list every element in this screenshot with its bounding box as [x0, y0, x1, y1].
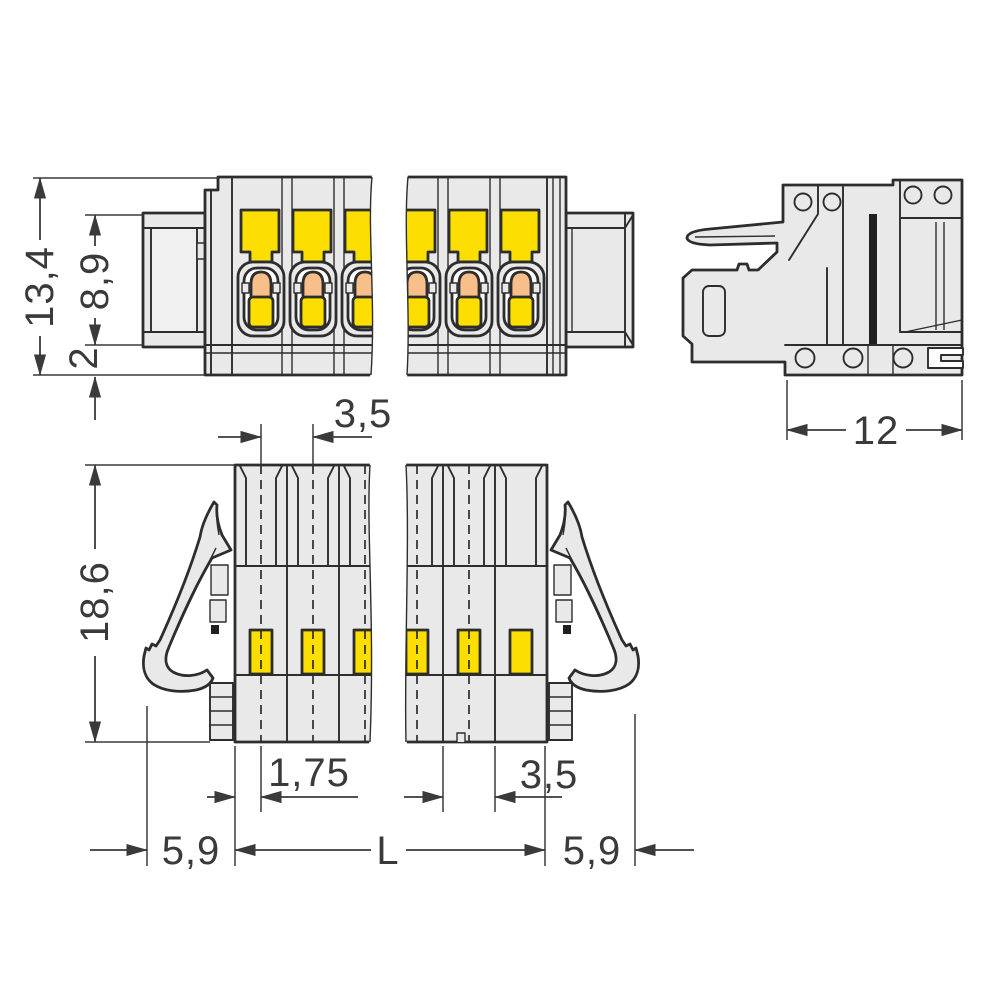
front-view: 13,4 8,9 2 — [18, 173, 633, 420]
dim-label-total-height: 13,4 — [18, 246, 62, 328]
dim-label-half-pitch: 1,75 — [268, 751, 350, 795]
bottom-view: 18,6 3,5 1,75 3,5 5,9 L 5,9 — [73, 392, 694, 873]
lever-inner-line — [695, 236, 775, 237]
dim-label-base-height: 2 — [62, 346, 106, 369]
contact-strip — [869, 214, 877, 345]
break-gap — [369, 461, 407, 746]
dim-label-length: L — [376, 829, 399, 873]
dim-label-depth: 12 — [853, 409, 900, 453]
front-right-flange — [566, 213, 633, 347]
connector-dimensional-drawing: 13,4 8,9 2 — [0, 0, 1000, 1000]
dim-label-overall-depth: 18,6 — [73, 561, 117, 643]
technical-drawing-canvas: 13,4 8,9 2 — [0, 0, 1000, 1000]
front-left-flange — [143, 213, 205, 347]
terminal-pole — [290, 210, 336, 336]
terminal-pole — [498, 210, 544, 336]
terminal-pole — [238, 210, 284, 336]
terminal-pole — [446, 210, 492, 336]
dim-label-left-margin: 5,9 — [162, 829, 221, 873]
dim-label-pitch-top: 3,5 — [334, 392, 393, 436]
dim-label-pitch-bottom: 3,5 — [520, 753, 579, 797]
mounting-latch-left — [143, 502, 233, 740]
dim-label-right-margin: 5,9 — [563, 829, 622, 873]
break-gap — [370, 173, 408, 379]
bottom-edge-notch — [457, 733, 465, 742]
side-dimensions: 12 — [787, 380, 962, 453]
side-view: 12 — [683, 180, 963, 453]
dim-label-flange-height: 8,9 — [73, 252, 117, 311]
mounting-latch-right — [549, 502, 639, 740]
side-mouth-slot — [703, 286, 725, 336]
